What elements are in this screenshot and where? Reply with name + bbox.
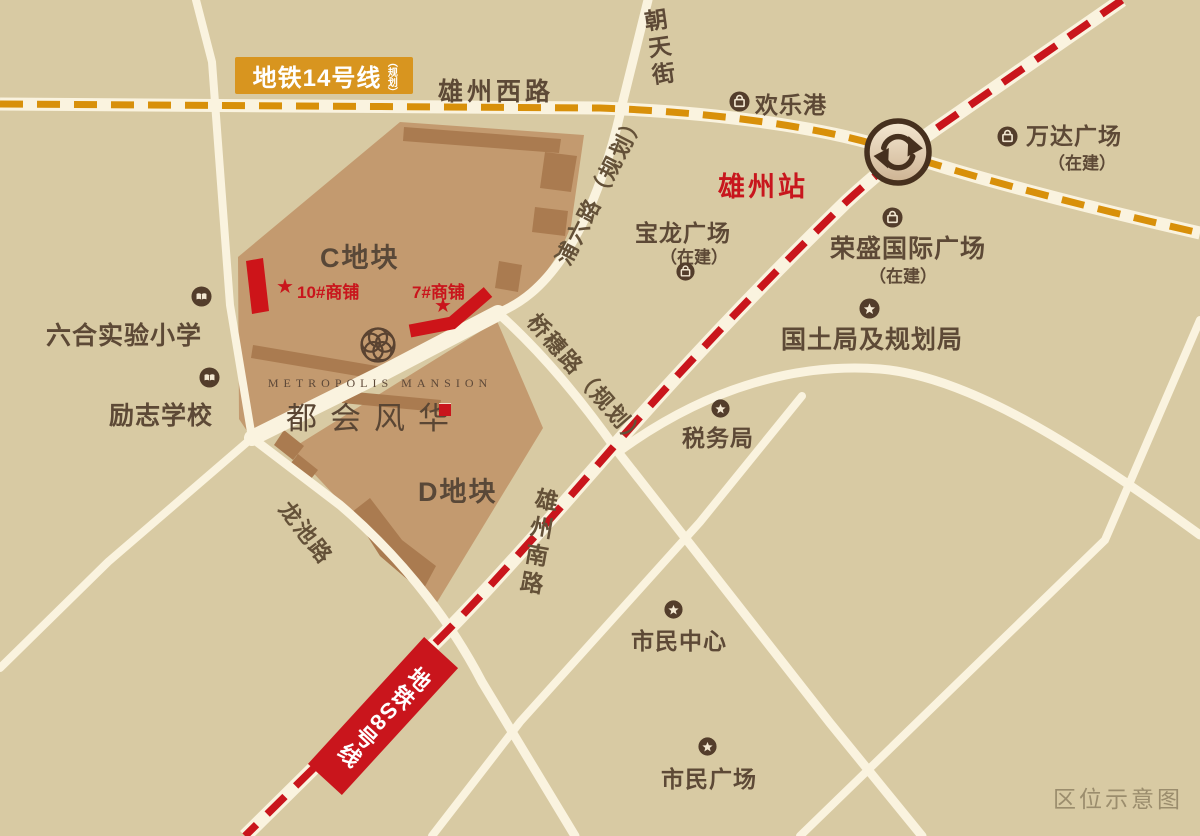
- poi-shimin-zhongxin: 市民中心: [631, 622, 727, 656]
- school-book-icon: [191, 286, 212, 312]
- station-icon: [867, 121, 929, 183]
- project-name-en: METROPOLIS MANSION: [262, 376, 498, 391]
- shop10-label: 10#商铺: [297, 278, 359, 303]
- poi-shuiwu: 税务局: [682, 419, 754, 453]
- poi-huanlegang: 欢乐港: [755, 86, 827, 120]
- parcel-c-label: C地块: [320, 236, 400, 275]
- metro-line14-label: 地铁14号线: [253, 58, 382, 93]
- station-name: 雄州站: [718, 165, 808, 204]
- mall-icon: [676, 262, 695, 286]
- school-book-icon: [199, 367, 220, 393]
- project-name-cn: 都会风华: [284, 393, 464, 438]
- metro-line14-label-box: 地铁14号线 （规划）: [235, 57, 413, 94]
- parcel-d-label: D地块: [418, 470, 498, 509]
- poi-wanda-status: （在建）: [1048, 149, 1116, 174]
- shop10-star-icon: ★: [276, 277, 294, 297]
- road-label-xiongzhou-west: 雄州西路: [438, 72, 554, 108]
- metro-line14-plan-suffix: （规划）: [385, 57, 395, 94]
- government-star-icon: [698, 737, 717, 761]
- government-star-icon: [664, 600, 683, 624]
- poi-rongsheng: 荣盛国际广场: [830, 229, 986, 265]
- poi-liuhe-school: 六合实验小学: [46, 316, 202, 352]
- mall-icon: [997, 126, 1018, 152]
- poi-guotu: 国土局及规划局: [781, 320, 963, 356]
- mall-icon: [729, 91, 750, 117]
- poi-rongsheng-status: （在建）: [869, 262, 937, 287]
- shop7-star-icon: ★: [434, 296, 452, 316]
- brand-seal-icon: [439, 403, 451, 416]
- poi-lizhi-school: 励志学校: [109, 396, 213, 432]
- poi-wanda: 万达广场: [1026, 117, 1122, 151]
- map-caption: 区位示意图: [1053, 780, 1183, 814]
- poi-shimin-guangchang: 市民广场: [661, 760, 757, 794]
- location-map: 地铁14号线 （规划） 地铁S8号线 雄州站 雄州西路 朝天街 浦六路（规划） …: [0, 0, 1200, 836]
